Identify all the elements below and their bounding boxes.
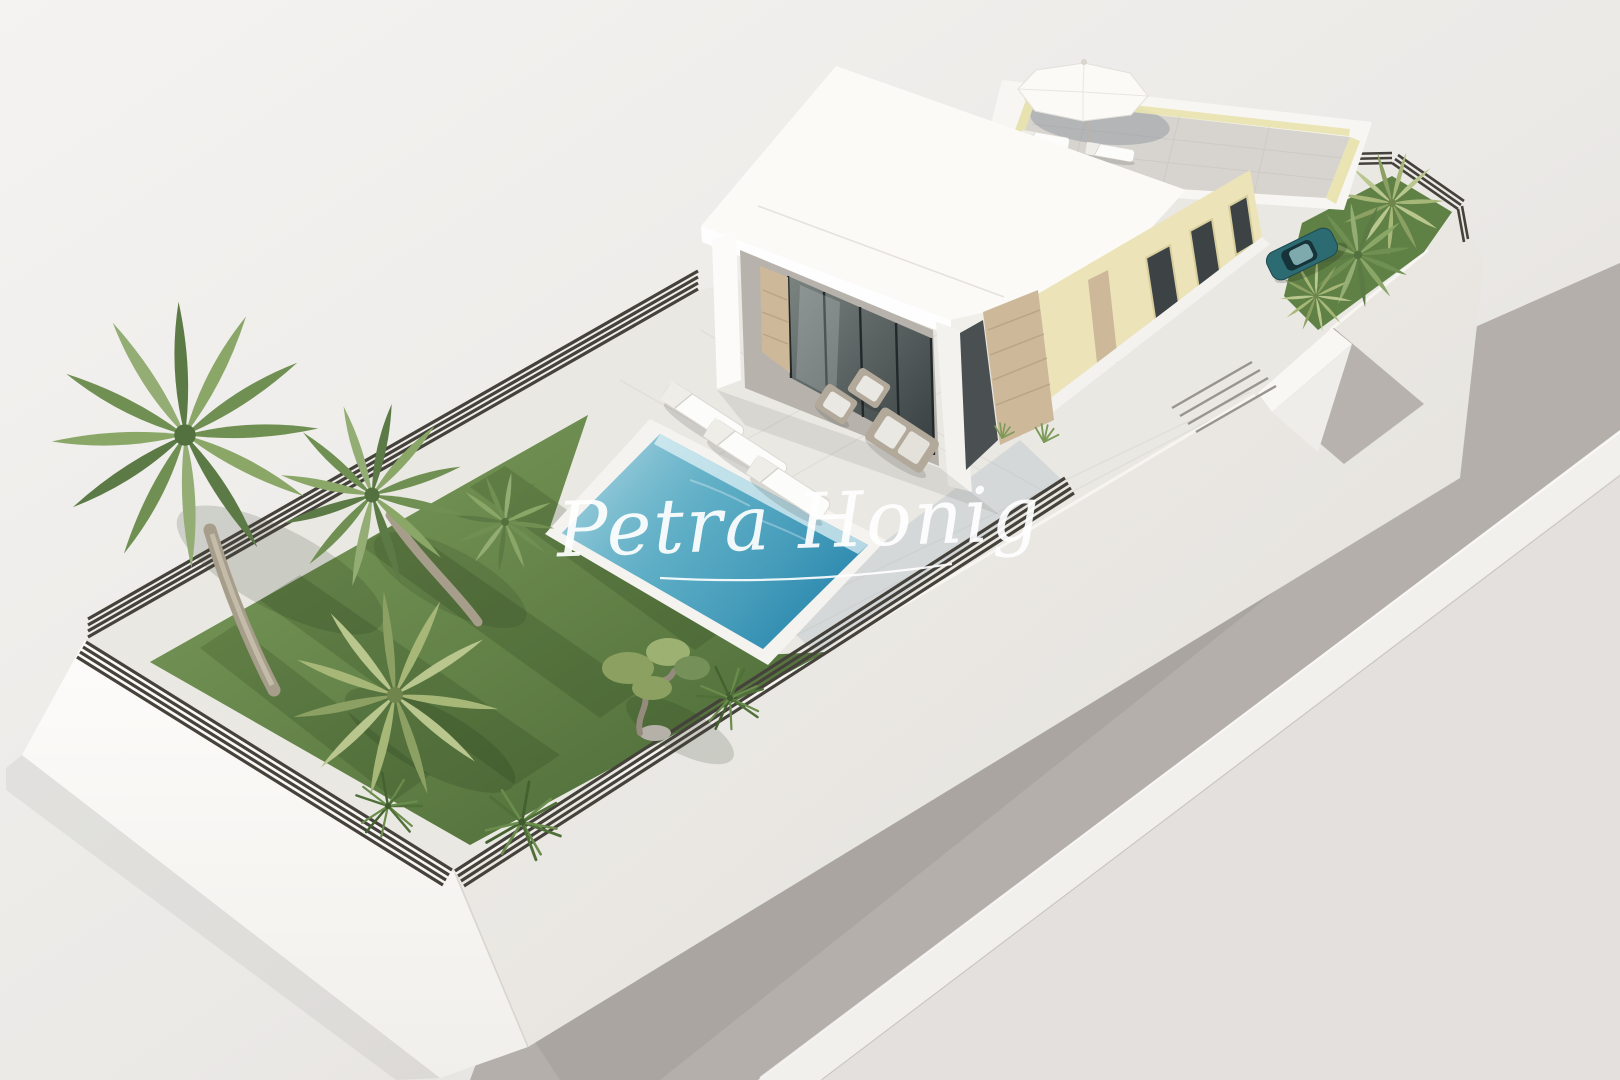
watermark-text: Petra Honig <box>553 469 1043 575</box>
render-canvas: Petra Honig <box>0 0 1620 1080</box>
villa-render: Petra Honig <box>0 0 1620 1080</box>
porch-pillar-left <box>712 231 741 389</box>
